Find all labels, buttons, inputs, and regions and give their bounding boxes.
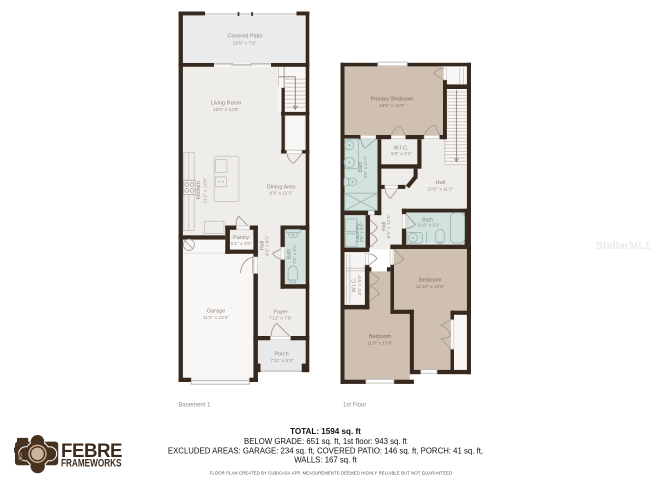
- svg-text:11'0" x 17'6": 11'0" x 17'6": [367, 341, 393, 347]
- svg-text:6'0" x 4'2": 6'0" x 4'2": [391, 151, 412, 157]
- svg-text:FLOOR PLAN CREATED BY CUBICASA: FLOOR PLAN CREATED BY CUBICASA APP. MEAS…: [210, 470, 453, 475]
- svg-text:4'2" x 8'1": 4'2" x 8'1": [265, 235, 271, 256]
- svg-text:Bedroom: Bedroom: [419, 278, 442, 284]
- svg-text:Porch: Porch: [274, 352, 288, 358]
- svg-text:5'5" x 11'7": 5'5" x 11'7": [363, 155, 368, 178]
- svg-text:W.I.C.: W.I.C.: [352, 277, 358, 292]
- svg-text:Hall: Hall: [436, 180, 445, 186]
- svg-text:Primary Bedroom: Primary Bedroom: [371, 96, 414, 102]
- svg-text:11'2" x 12'8": 11'2" x 12'8": [203, 177, 209, 203]
- svg-text:8'3" x 11'3": 8'3" x 11'3": [269, 191, 293, 197]
- svg-text:Foyer: Foyer: [273, 310, 287, 316]
- svg-text:Covered Patio: Covered Patio: [228, 34, 263, 40]
- svg-text:11'10" x 19'5": 11'10" x 19'5": [416, 284, 445, 290]
- svg-text:WALLS: 167 sq. ft: WALLS: 167 sq. ft: [294, 455, 357, 464]
- svg-text:19'5" x 7'6": 19'5" x 7'6": [233, 40, 257, 46]
- svg-text:7'11" x 7'9": 7'11" x 7'9": [269, 315, 293, 321]
- svg-text:9'10" x 5'1": 9'10" x 5'1": [417, 223, 440, 228]
- svg-text:FRAMEWORKS: FRAMEWORKS: [61, 458, 122, 470]
- svg-text:W.I.C.: W.I.C.: [394, 145, 409, 151]
- svg-text:BELOW GRADE: 651 sq. ft, 1st f: BELOW GRADE: 651 sq. ft, 1st floor: 943 …: [244, 437, 408, 446]
- svg-text:10'2" x 11'2": 10'2" x 11'2": [427, 186, 453, 192]
- svg-text:Dining Area: Dining Area: [267, 185, 296, 191]
- svg-text:StellarMLS: StellarMLS: [596, 240, 650, 252]
- svg-text:Hall: Hall: [260, 241, 266, 250]
- svg-text:TOTAL: 1594 sq. ft: TOTAL: 1594 sq. ft: [290, 427, 361, 436]
- svg-text:Basement 1: Basement 1: [178, 402, 211, 408]
- svg-text:11'0" x 22'3": 11'0" x 22'3": [203, 315, 229, 321]
- svg-text:15'8" x 13'9": 15'8" x 13'9": [213, 107, 240, 113]
- svg-text:Bedroom: Bedroom: [369, 334, 392, 340]
- svg-text:2'6" x 6'5": 2'6" x 6'5": [359, 222, 364, 242]
- svg-text:8'1" x 3'9": 8'1" x 3'9": [231, 241, 252, 247]
- svg-text:5'5" x 12'3": 5'5" x 12'3": [386, 214, 392, 238]
- svg-text:7'11" x 5'3": 7'11" x 5'3": [270, 358, 294, 364]
- svg-text:7'6" x 8'1": 7'6" x 8'1": [292, 244, 297, 264]
- svg-text:Kitchen: Kitchen: [196, 181, 202, 199]
- svg-text:Living Room: Living Room: [211, 101, 242, 107]
- svg-text:Pantry: Pantry: [233, 235, 249, 241]
- svg-text:Garage: Garage: [207, 309, 225, 315]
- svg-text:15'8" x 11'0": 15'8" x 11'0": [379, 103, 405, 109]
- svg-text:1st Floor: 1st Floor: [343, 402, 366, 408]
- svg-text:3'6" x 6'9": 3'6" x 6'9": [357, 274, 363, 295]
- svg-text:EXCLUDED AREAS: GARAGE: 234 sq: EXCLUDED AREAS: GARAGE: 234 sq. ft, COVE…: [168, 446, 483, 455]
